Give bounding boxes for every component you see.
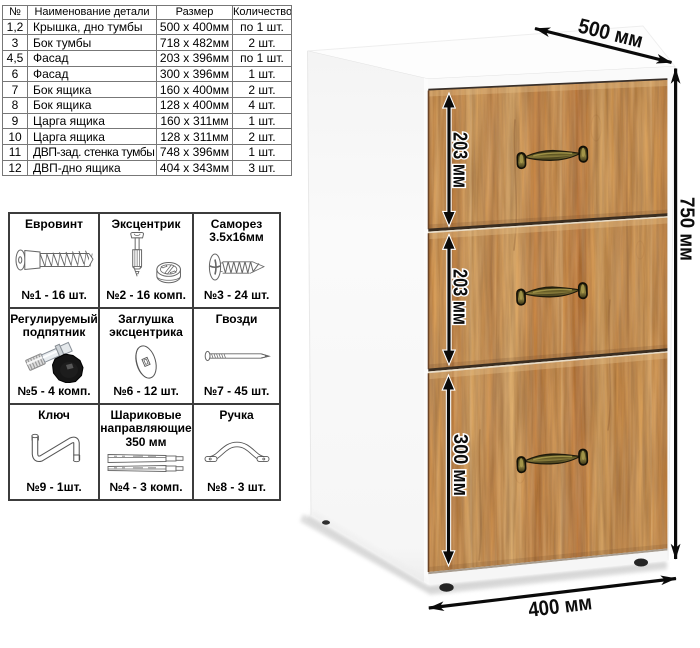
svg-text:750 мм: 750 мм bbox=[676, 197, 698, 261]
svg-text:203 мм: 203 мм bbox=[449, 132, 471, 188]
svg-text:300 мм: 300 мм bbox=[449, 434, 471, 496]
svg-text:203 мм: 203 мм bbox=[449, 269, 471, 325]
